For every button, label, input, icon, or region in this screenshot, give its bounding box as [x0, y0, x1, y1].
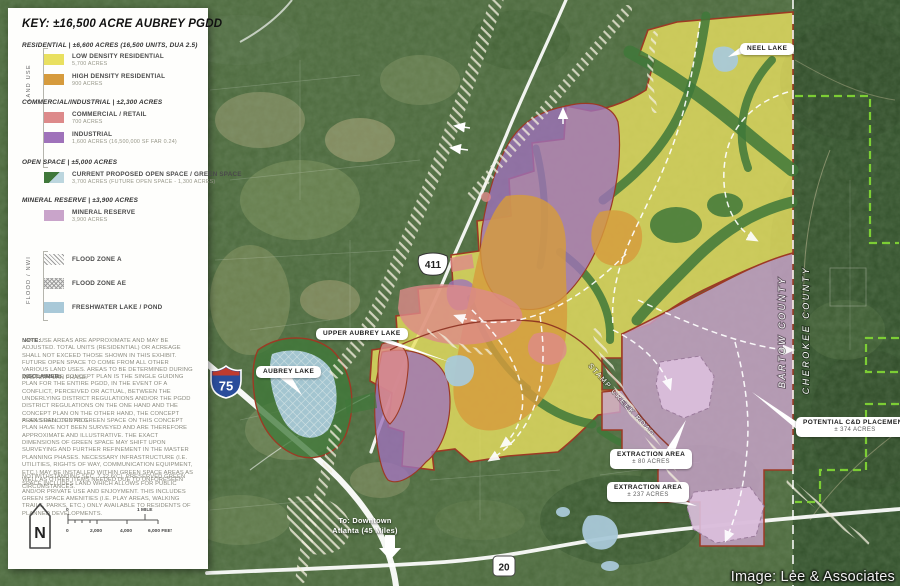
- swatch-low-density: [44, 54, 64, 65]
- residential-heading: RESIDENTIAL | ±6,600 ACRES (16,500 UNITS…: [22, 42, 198, 49]
- callout-extraction-237: EXTRACTION AREA ± 237 ACRES: [607, 482, 689, 502]
- svg-text:0: 0: [66, 507, 69, 513]
- swatch-commercial: [44, 112, 64, 123]
- svg-text:1 MILE: 1 MILE: [137, 507, 153, 513]
- callout-cd-placement: POTENTIAL C&D PLACEMENT ± 374 ACRES: [796, 417, 900, 437]
- atlanta-direction-note: To: Downtown Atlanta (45 Miles): [326, 516, 404, 536]
- interstate-75-shield: 75: [211, 366, 241, 398]
- scale-bar: 0 1 MILE 0 2,000 4,000 6,000 FEET: [64, 504, 172, 536]
- mineral-reserve-heading: MINERAL RESERVE | ±3,900 ACRES: [22, 197, 138, 204]
- ga-20-shield: 20: [493, 556, 515, 576]
- svg-text:20: 20: [498, 563, 510, 574]
- callout-acres: ± 80 ACRES: [617, 459, 685, 467]
- callout-neel-lake: NEEL LAKE: [740, 43, 794, 55]
- callout-acres: ± 237 ACRES: [614, 492, 682, 500]
- callout-title: POTENTIAL C&D PLACEMENT: [803, 419, 900, 426]
- us-411-shield: 411: [418, 253, 448, 275]
- svg-text:411: 411: [425, 260, 442, 271]
- swatch-industrial: [44, 132, 64, 143]
- callout-acres: ± 374 ACRES: [803, 427, 900, 435]
- bartow-county-label: BARTOW COUNTY: [777, 276, 787, 388]
- svg-text:0: 0: [66, 528, 69, 534]
- swatch-mineral-reserve: [44, 210, 64, 221]
- svg-text:N: N: [34, 525, 46, 542]
- swatch-open-space: [44, 172, 64, 183]
- legend-panel: KEY: ±16,500 ACRE AUBREY PGDD LAND USE R…: [8, 8, 208, 569]
- svg-text:75: 75: [219, 379, 233, 394]
- commercial-industrial-heading: COMMERCIAL/INDUSTRIAL | ±2,300 ACRES: [22, 99, 162, 106]
- callout-upper-aubrey-lake: UPPER AUBREY LAKE: [316, 328, 408, 340]
- swatch-flood-zone-ae: [44, 278, 64, 289]
- legend-title: KEY: ±16,500 ACRE AUBREY PGDD: [22, 18, 222, 30]
- land-use-section-label: LAND USE: [26, 48, 34, 118]
- callout-title: EXTRACTION AREA: [617, 451, 685, 458]
- flood-section-label: FLOOD / NWI: [26, 245, 34, 315]
- svg-text:6,000 FEET: 6,000 FEET: [148, 528, 172, 534]
- open-space-heading: OPEN SPACE | ±5,000 ACRES: [22, 159, 117, 166]
- swatch-flood-zone-a: [44, 254, 64, 265]
- svg-text:2,000: 2,000: [90, 528, 102, 534]
- callout-aubrey-lake: AUBREY LAKE: [256, 366, 321, 378]
- aubrey-pgdd-map-image: STAMP CREEK ROAD: [0, 0, 900, 586]
- swatch-freshwater: [44, 302, 64, 313]
- north-arrow: N: [26, 502, 54, 550]
- svg-text:4,000: 4,000: [120, 528, 132, 534]
- land-use-bracket: [43, 48, 48, 168]
- callout-title: EXTRACTION AREA: [614, 484, 682, 491]
- callout-extraction-80: EXTRACTION AREA ± 80 ACRES: [610, 449, 692, 469]
- cherokee-county-label: CHEROKEE COUNTY: [801, 266, 811, 395]
- swatch-high-density: [44, 74, 64, 85]
- image-credit: Image: Lee & Associates: [731, 569, 895, 585]
- extraction-area-80: [656, 356, 714, 418]
